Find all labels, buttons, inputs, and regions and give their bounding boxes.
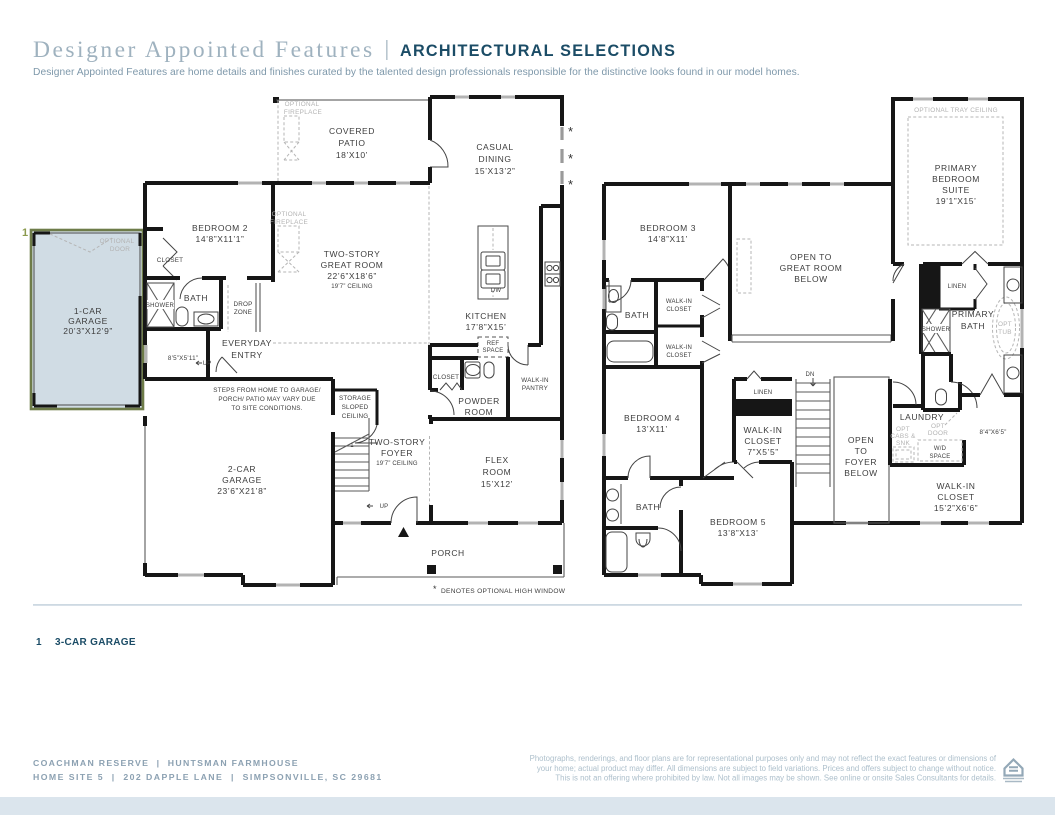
svg-text:13’8”X13’: 13’8”X13’ bbox=[718, 528, 759, 538]
svg-text:COACHMAN RESERVE | HUNTSMAN: COACHMAN RESERVE | HUNTSMAN FARMHOUSE bbox=[33, 758, 299, 768]
svg-text:15’X12’: 15’X12’ bbox=[481, 479, 513, 489]
svg-text:FIREPLACE: FIREPLACE bbox=[270, 219, 308, 226]
svg-text:PORCH: PORCH bbox=[431, 548, 464, 558]
svg-text:13’X11’: 13’X11’ bbox=[636, 424, 668, 434]
svg-text:SPACE: SPACE bbox=[930, 454, 951, 460]
svg-text:14’8”X11’1”: 14’8”X11’1” bbox=[196, 234, 245, 244]
svg-text:FOYER: FOYER bbox=[381, 448, 413, 458]
svg-text:GARAGE: GARAGE bbox=[222, 475, 262, 485]
svg-text:WALK-IN: WALK-IN bbox=[666, 299, 692, 305]
svg-text:1: 1 bbox=[350, 443, 354, 449]
svg-text:19’7” CEILING: 19’7” CEILING bbox=[331, 284, 373, 290]
svg-text:Photographs, renderings, and f: Photographs, renderings, and floor plans… bbox=[530, 754, 997, 763]
svg-text:SPACE: SPACE bbox=[483, 348, 504, 354]
svg-text:DOOR: DOOR bbox=[110, 246, 130, 253]
svg-text:DN: DN bbox=[805, 372, 814, 378]
svg-text:BATH: BATH bbox=[636, 502, 660, 512]
svg-text:SLOPED: SLOPED bbox=[342, 404, 369, 411]
svg-text:OPTIONAL: OPTIONAL bbox=[285, 101, 320, 108]
svg-text:14’8”X11’: 14’8”X11’ bbox=[648, 234, 688, 244]
svg-text:CLOSET: CLOSET bbox=[433, 374, 459, 381]
svg-text:DINING: DINING bbox=[478, 154, 511, 164]
svg-text:PORCH/ PATIO MAY VARY DUE: PORCH/ PATIO MAY VARY DUE bbox=[218, 396, 315, 403]
svg-text:FOYER: FOYER bbox=[845, 457, 877, 467]
svg-text:POWDER: POWDER bbox=[458, 396, 500, 406]
svg-text:TUB: TUB bbox=[998, 329, 1012, 336]
svg-text:OPT: OPT bbox=[998, 321, 1012, 328]
svg-text:7”X5’5”: 7”X5’5” bbox=[747, 447, 778, 457]
svg-text:HOME SITE 5 | 202 DAPPLE LAN: HOME SITE 5 | 202 DAPPLE LANE | SIMPSONV… bbox=[33, 772, 383, 782]
svg-text:PRIMARY: PRIMARY bbox=[952, 309, 994, 319]
svg-text:Designer Appointed Features ar: Designer Appointed Features are home det… bbox=[33, 67, 800, 78]
svg-text:This is not an offering where: This is not an offering where prohibited… bbox=[555, 774, 996, 783]
svg-text:CLOSET: CLOSET bbox=[666, 353, 691, 359]
svg-text:GREAT ROOM: GREAT ROOM bbox=[321, 260, 384, 270]
svg-text:UP: UP bbox=[203, 361, 212, 367]
svg-text:TO: TO bbox=[855, 446, 868, 456]
svg-text:BATH: BATH bbox=[184, 293, 208, 303]
svg-text:17’8”X15’: 17’8”X15’ bbox=[466, 322, 507, 332]
svg-text:OPT: OPT bbox=[931, 423, 945, 430]
svg-text:20’3”X12’9”: 20’3”X12’9” bbox=[63, 326, 113, 336]
svg-text:KITCHEN: KITCHEN bbox=[465, 311, 506, 321]
svg-text:ZONE: ZONE bbox=[234, 309, 252, 316]
svg-text:FLEX: FLEX bbox=[485, 455, 508, 465]
svg-text:CLOSET: CLOSET bbox=[937, 492, 974, 502]
svg-text:STORAGE: STORAGE bbox=[339, 395, 371, 402]
svg-text:WALK-IN: WALK-IN bbox=[937, 481, 976, 491]
svg-text:*: * bbox=[568, 177, 573, 192]
svg-text:BEDROOM 4: BEDROOM 4 bbox=[624, 413, 680, 423]
svg-text:EVERYDAY: EVERYDAY bbox=[222, 338, 272, 348]
svg-text:SHOWER: SHOWER bbox=[922, 327, 951, 333]
svg-text:23’6”X21’8”: 23’6”X21’8” bbox=[217, 486, 267, 496]
svg-text:BEDROOM 5: BEDROOM 5 bbox=[710, 517, 766, 527]
svg-text:FIREPLACE: FIREPLACE bbox=[284, 109, 322, 116]
svg-text:BEDROOM 3: BEDROOM 3 bbox=[640, 223, 696, 233]
svg-text:STEPS FROM HOME TO GARAGE/: STEPS FROM HOME TO GARAGE/ bbox=[213, 387, 321, 394]
svg-text:LAUNDRY: LAUNDRY bbox=[900, 412, 944, 422]
svg-text:DOOR: DOOR bbox=[928, 430, 948, 437]
svg-text:1: 1 bbox=[22, 227, 28, 239]
svg-text:BATH: BATH bbox=[625, 310, 649, 320]
svg-text:GREAT ROOM: GREAT ROOM bbox=[780, 263, 843, 273]
svg-text:*: * bbox=[433, 584, 437, 594]
svg-text:CASUAL: CASUAL bbox=[476, 142, 513, 152]
svg-text:18’X10’: 18’X10’ bbox=[336, 150, 368, 160]
svg-text:BEDROOM 2: BEDROOM 2 bbox=[192, 223, 248, 233]
svg-text:OPEN: OPEN bbox=[848, 435, 874, 445]
svg-text:1: 1 bbox=[36, 637, 42, 648]
svg-text:2-CAR: 2-CAR bbox=[228, 464, 256, 474]
svg-text:BELOW: BELOW bbox=[844, 468, 877, 478]
svg-text:DROP: DROP bbox=[234, 301, 253, 308]
svg-text:OPTIONAL: OPTIONAL bbox=[100, 238, 135, 245]
svg-text:LINEN: LINEN bbox=[754, 390, 773, 396]
svg-text:REF: REF bbox=[487, 341, 500, 347]
svg-text:OPTIONAL TRAY CEILING: OPTIONAL TRAY CEILING bbox=[914, 107, 998, 114]
svg-text:COVERED: COVERED bbox=[329, 126, 375, 136]
svg-text:19’1”X15’: 19’1”X15’ bbox=[936, 196, 977, 206]
svg-text:PANTRY: PANTRY bbox=[522, 385, 549, 392]
svg-text:CLOSET: CLOSET bbox=[157, 257, 183, 264]
svg-text:15’X13’2”: 15’X13’2” bbox=[475, 166, 516, 176]
svg-text:22’6”X18’6”: 22’6”X18’6” bbox=[327, 271, 377, 281]
svg-text:TO SITE CONDITIONS.: TO SITE CONDITIONS. bbox=[231, 405, 302, 412]
svg-text:19’7” CEILING: 19’7” CEILING bbox=[376, 461, 418, 467]
svg-text:WALK-IN: WALK-IN bbox=[666, 345, 692, 351]
svg-text:ENTRY: ENTRY bbox=[231, 350, 262, 360]
svg-text:ROOM: ROOM bbox=[483, 467, 512, 477]
svg-text:OPTIONAL: OPTIONAL bbox=[272, 211, 307, 218]
svg-text:ARCHITECTURAL SELECTIONS: ARCHITECTURAL SELECTIONS bbox=[400, 42, 676, 60]
svg-text:SNK: SNK bbox=[896, 440, 910, 447]
svg-text:1-CAR: 1-CAR bbox=[74, 306, 102, 316]
svg-text:CABS &: CABS & bbox=[890, 433, 916, 440]
svg-text:DENOTES OPTIONAL HIGH WINDOW: DENOTES OPTIONAL HIGH WINDOW bbox=[441, 588, 566, 595]
svg-text:15’2”X6’6”: 15’2”X6’6” bbox=[934, 503, 978, 513]
svg-text:PRIMARY: PRIMARY bbox=[935, 163, 977, 173]
svg-text:GARAGE: GARAGE bbox=[68, 316, 108, 326]
svg-text:CLOSET: CLOSET bbox=[666, 307, 691, 313]
svg-text:BATH: BATH bbox=[961, 321, 985, 331]
svg-text:OPT: OPT bbox=[896, 426, 910, 433]
svg-text:LINEN: LINEN bbox=[948, 284, 967, 290]
svg-text:WALK-IN: WALK-IN bbox=[744, 425, 783, 435]
svg-text:BEDROOM: BEDROOM bbox=[932, 174, 980, 184]
svg-text:TWO-STORY: TWO-STORY bbox=[324, 249, 381, 259]
svg-text:*: * bbox=[568, 151, 573, 166]
svg-text:Designer Appointed Features: Designer Appointed Features bbox=[33, 37, 375, 63]
svg-text:CLOSET: CLOSET bbox=[744, 436, 781, 446]
svg-text:UP: UP bbox=[380, 504, 389, 510]
svg-text:SUITE: SUITE bbox=[942, 185, 970, 195]
svg-text:CEILING: CEILING bbox=[342, 413, 369, 420]
svg-text:your home; actual product may: your home; actual product may differ. Al… bbox=[537, 764, 996, 773]
svg-text:DW: DW bbox=[491, 288, 502, 294]
svg-text:WALK-IN: WALK-IN bbox=[521, 377, 549, 384]
svg-text:TWO-STORY: TWO-STORY bbox=[369, 437, 426, 447]
svg-text:*: * bbox=[568, 124, 573, 139]
svg-text:ROOM: ROOM bbox=[465, 407, 494, 417]
svg-text:OPEN TO: OPEN TO bbox=[790, 252, 832, 262]
svg-text:8’5”X5’11”: 8’5”X5’11” bbox=[168, 355, 198, 362]
svg-text:BELOW: BELOW bbox=[794, 274, 827, 284]
svg-text:8’4”X6’5”: 8’4”X6’5” bbox=[980, 429, 1007, 436]
svg-text:3-CAR GARAGE: 3-CAR GARAGE bbox=[55, 637, 136, 648]
svg-text:SHOWER: SHOWER bbox=[146, 303, 175, 309]
svg-text:W/D: W/D bbox=[934, 446, 947, 452]
svg-text:PATIO: PATIO bbox=[339, 138, 366, 148]
